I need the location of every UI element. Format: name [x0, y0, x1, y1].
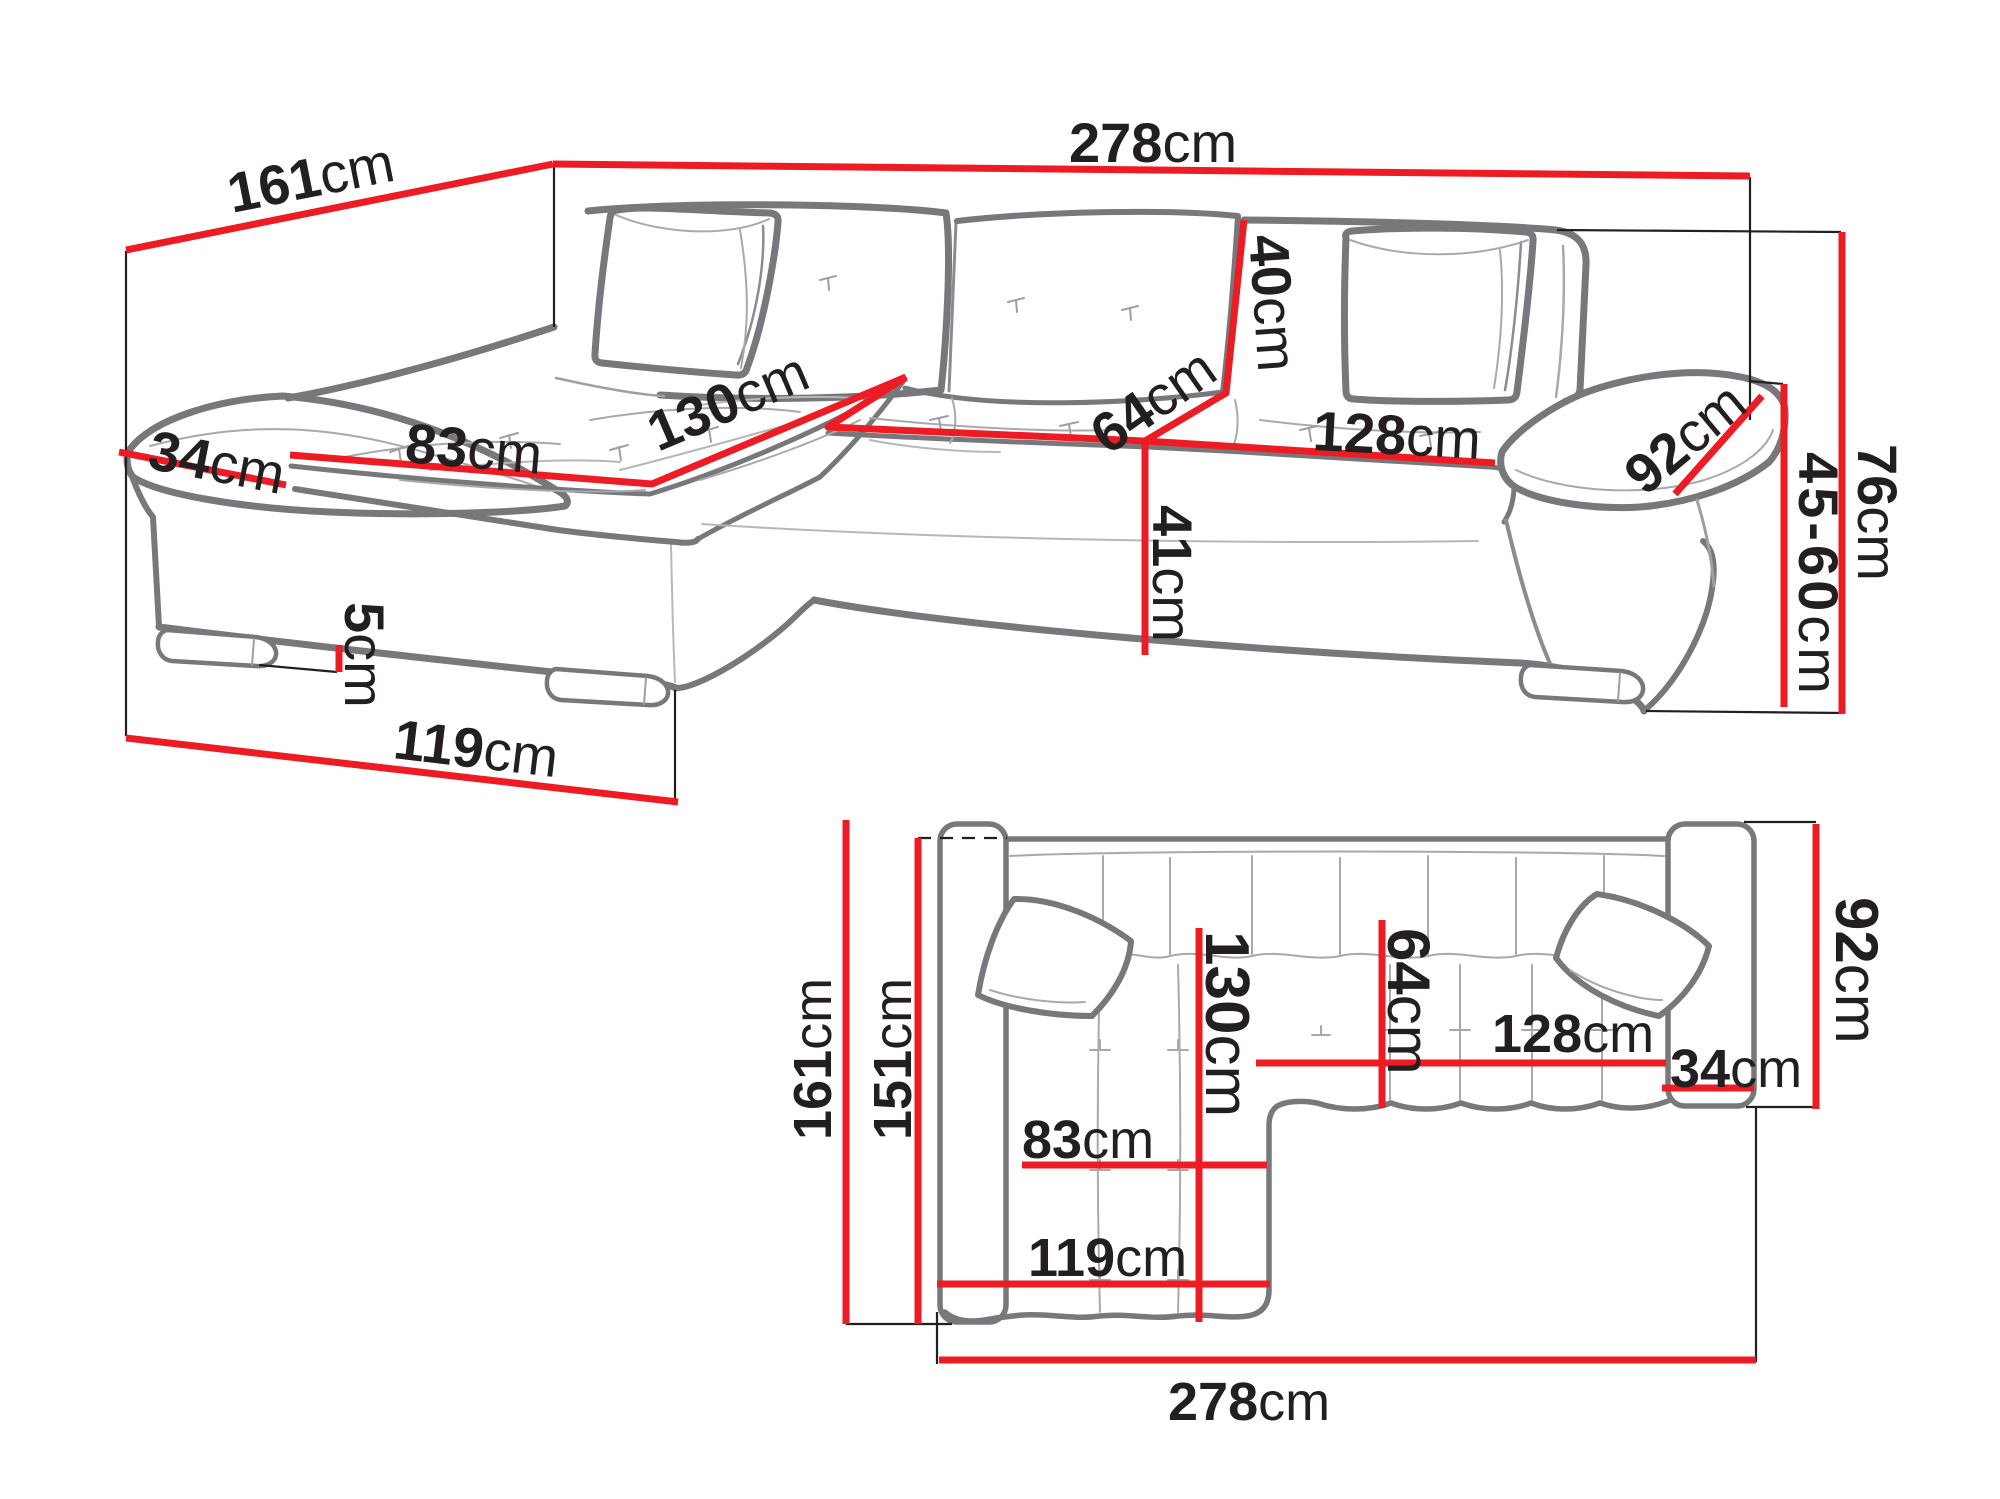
- svg-text:128cm: 128cm: [1311, 399, 1482, 471]
- svg-text:130cm: 130cm: [1192, 931, 1261, 1117]
- svg-text:278cm: 278cm: [1168, 1372, 1330, 1432]
- svg-text:83cm: 83cm: [1022, 1110, 1154, 1170]
- svg-text:41cm: 41cm: [1141, 505, 1204, 642]
- svg-text:64cm: 64cm: [1375, 928, 1442, 1075]
- svg-text:40cm: 40cm: [1237, 232, 1309, 373]
- svg-text:83cm: 83cm: [403, 411, 545, 486]
- svg-text:5cm: 5cm: [333, 602, 396, 708]
- svg-text:119cm: 119cm: [1028, 1228, 1187, 1288]
- svg-text:128cm: 128cm: [1492, 1004, 1654, 1064]
- svg-text:151cm: 151cm: [863, 978, 923, 1140]
- svg-text:161cm: 161cm: [783, 978, 843, 1140]
- svg-text:119cm: 119cm: [391, 707, 562, 789]
- svg-text:92cm: 92cm: [1823, 897, 1890, 1044]
- svg-text:45-60cm: 45-60cm: [1787, 452, 1850, 698]
- svg-text:34cm: 34cm: [1670, 1039, 1802, 1099]
- svg-text:76cm: 76cm: [1846, 444, 1909, 581]
- svg-text:278cm: 278cm: [1069, 111, 1237, 174]
